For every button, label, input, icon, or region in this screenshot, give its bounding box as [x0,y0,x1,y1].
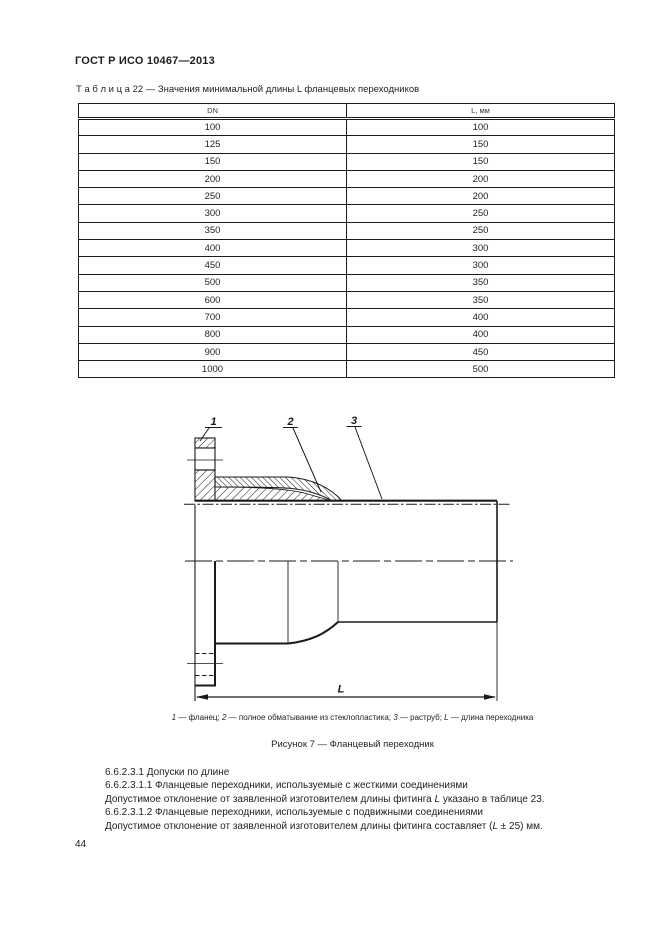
outside-profile [187,501,497,701]
table-cell: 450 [79,257,347,274]
table-cell: 300 [347,257,615,274]
paragraph: Допустимое отклонение от заявленной изго… [105,820,615,833]
paragraph: 6.6.2.3.1.1 Фланцевые переходники, испол… [105,779,615,792]
table-cell: 100 [79,119,347,136]
table-cell: 200 [347,170,615,187]
table-cell: 100 [347,119,615,136]
table-row: 600350 [79,291,615,308]
text-segment: ± 25) мм. [498,821,543,832]
callout-1: 1 [200,416,222,441]
column-header-l: L, мм [347,104,615,119]
table-cell: 800 [79,326,347,343]
table-row: 400300 [79,240,615,257]
table-caption: Т а б л и ц а 22 — Значения минимальной … [76,84,419,95]
table-cell: 700 [79,309,347,326]
table-cell: 500 [79,274,347,291]
table-cell: 450 [347,343,615,360]
callout-2-label: 2 [286,416,293,428]
table-row: 300250 [79,205,615,222]
table-cell: 300 [347,240,615,257]
body-text: 6.6.2.3.1 Допуски по длине6.6.2.3.1.1 Фл… [105,766,615,833]
text-segment: — фланец; [176,713,222,722]
table-row: 250200 [79,188,615,205]
text-segment: 6.6.2.3.1.2 Фланцевые переходники, испол… [105,807,483,818]
table-cell: 250 [347,222,615,239]
standard-header: ГОСТ Р ИСО 10467—2013 [75,55,215,67]
table-cell: 125 [79,136,347,153]
table-row: 200200 [79,170,615,187]
callout-3-label: 3 [351,415,357,427]
table-cell: 400 [347,309,615,326]
table-body: 1001001251501501502002002502003002503502… [79,119,615,378]
table-row: 900450 [79,343,615,360]
text-segment: Допустимое отклонение от заявленной изго… [105,794,434,805]
column-header-dn: DN [79,104,347,119]
table-row: 450300 [79,257,615,274]
table-row: 100100 [79,119,615,136]
figure-7-drawing: L 1 2 3 [140,408,560,710]
text-segment: — раструб; [398,713,444,722]
figure-title: Рисунок 7 — Фланцевый переходник [75,739,630,750]
table-row: 1000500 [79,361,615,378]
overwrap-section [215,477,342,501]
table-head: DN L, мм [79,104,615,119]
table-row: 800400 [79,326,615,343]
table-cell: 250 [347,205,615,222]
table-cell: 150 [79,153,347,170]
table-cell: 200 [79,170,347,187]
table-cell: 300 [79,205,347,222]
table-cell: 150 [347,136,615,153]
table-row: 500350 [79,274,615,291]
table-row: 700400 [79,309,615,326]
table-cell: 400 [347,326,615,343]
text-segment: — длина переходника [449,713,534,722]
table-cell: 400 [79,240,347,257]
paragraph: 6.6.2.3.1.2 Фланцевые переходники, испол… [105,806,615,819]
page-number: 44 [75,839,86,850]
text-segment: 6.6.2.3.1 Допуски по длине [105,767,229,778]
min-length-table: DN L, мм 1001001251501501502002002502003… [78,103,615,378]
callout-1-label: 1 [210,416,216,428]
socket-line [184,501,512,505]
table-cell: 150 [347,153,615,170]
table-cell: 250 [79,188,347,205]
callout-3: 3 [347,415,383,499]
text-segment: Допустимое отклонение от заявленной изго… [105,821,492,832]
table-row: 125150 [79,136,615,153]
table-cell: 900 [79,343,347,360]
dimension-label: L [338,684,345,696]
table-cell: 500 [347,361,615,378]
table-cell: 350 [347,274,615,291]
table-cell: 600 [79,291,347,308]
table-row: 350250 [79,222,615,239]
paragraph: 6.6.2.3.1 Допуски по длине [105,766,615,779]
table-cell: 350 [347,291,615,308]
text-segment: указано в таблице 23. [440,794,545,805]
paragraph: Допустимое отклонение от заявленной изго… [105,793,615,806]
length-dimension: L [196,684,496,700]
table-cell: 200 [347,188,615,205]
text-segment: — полное обматывание из стеклопластика; [226,713,393,722]
table-row: 150150 [79,153,615,170]
figure-caption: 1 — фланец; 2 — полное обматывание из ст… [75,713,630,722]
text-segment: 6.6.2.3.1.1 Фланцевые переходники, испол… [105,780,468,791]
table-cell: 1000 [79,361,347,378]
table-cell: 350 [79,222,347,239]
table-header-row: DN L, мм [79,104,615,119]
